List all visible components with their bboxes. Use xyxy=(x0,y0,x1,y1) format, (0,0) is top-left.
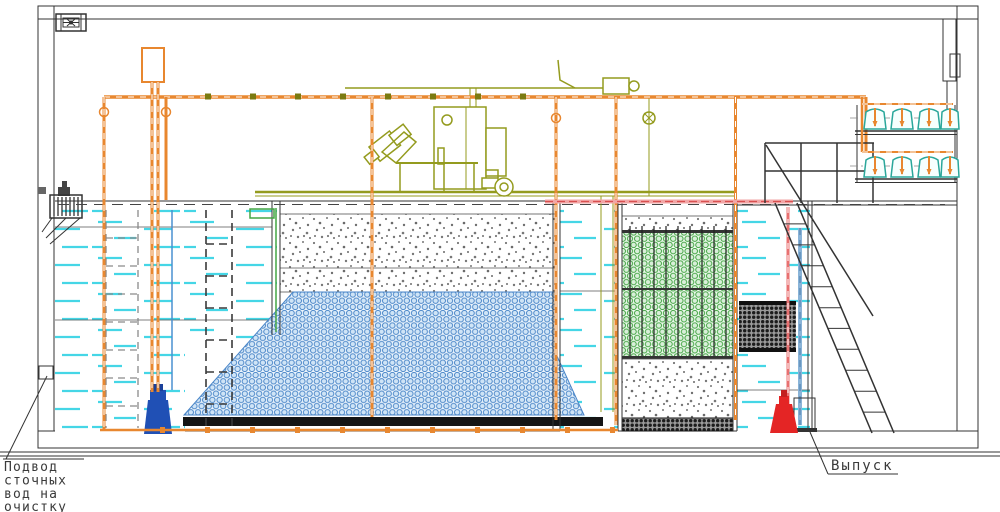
outlet-leader-line xyxy=(810,432,828,474)
top-wall xyxy=(38,6,978,19)
diffuser-row-lower xyxy=(864,156,959,177)
mechanical-screen-unit xyxy=(345,60,655,196)
biofilter-lower-layer xyxy=(622,359,733,418)
treatment-plant-section-drawing: Подвод сточных вод на очистку Выпуск xyxy=(0,0,1000,512)
annotation-outlet: Выпуск xyxy=(810,432,898,474)
biofilter-drain-grid xyxy=(622,418,733,431)
inclined-conveyor xyxy=(361,122,412,168)
air-valves xyxy=(100,108,561,123)
drawing-svg: Подвод сточных вод на очистку Выпуск xyxy=(0,0,1000,512)
screen-side-panel xyxy=(486,128,506,176)
air-distribution-box xyxy=(142,48,164,82)
outlet-label: Выпуск xyxy=(831,458,894,474)
floor-slab xyxy=(38,431,978,448)
media-retainer-bottom xyxy=(622,356,733,359)
olive-pump-motor xyxy=(603,78,629,94)
biofilter-tank xyxy=(618,201,737,431)
diffuser-row-upper xyxy=(864,108,959,129)
inlet-label-line4: очистку xyxy=(4,500,67,512)
inlet-leader-line xyxy=(6,376,47,459)
aeration-grid-bar xyxy=(183,417,603,426)
carrier-media-upper xyxy=(280,214,557,292)
ventilation-fan-icon xyxy=(56,14,86,31)
